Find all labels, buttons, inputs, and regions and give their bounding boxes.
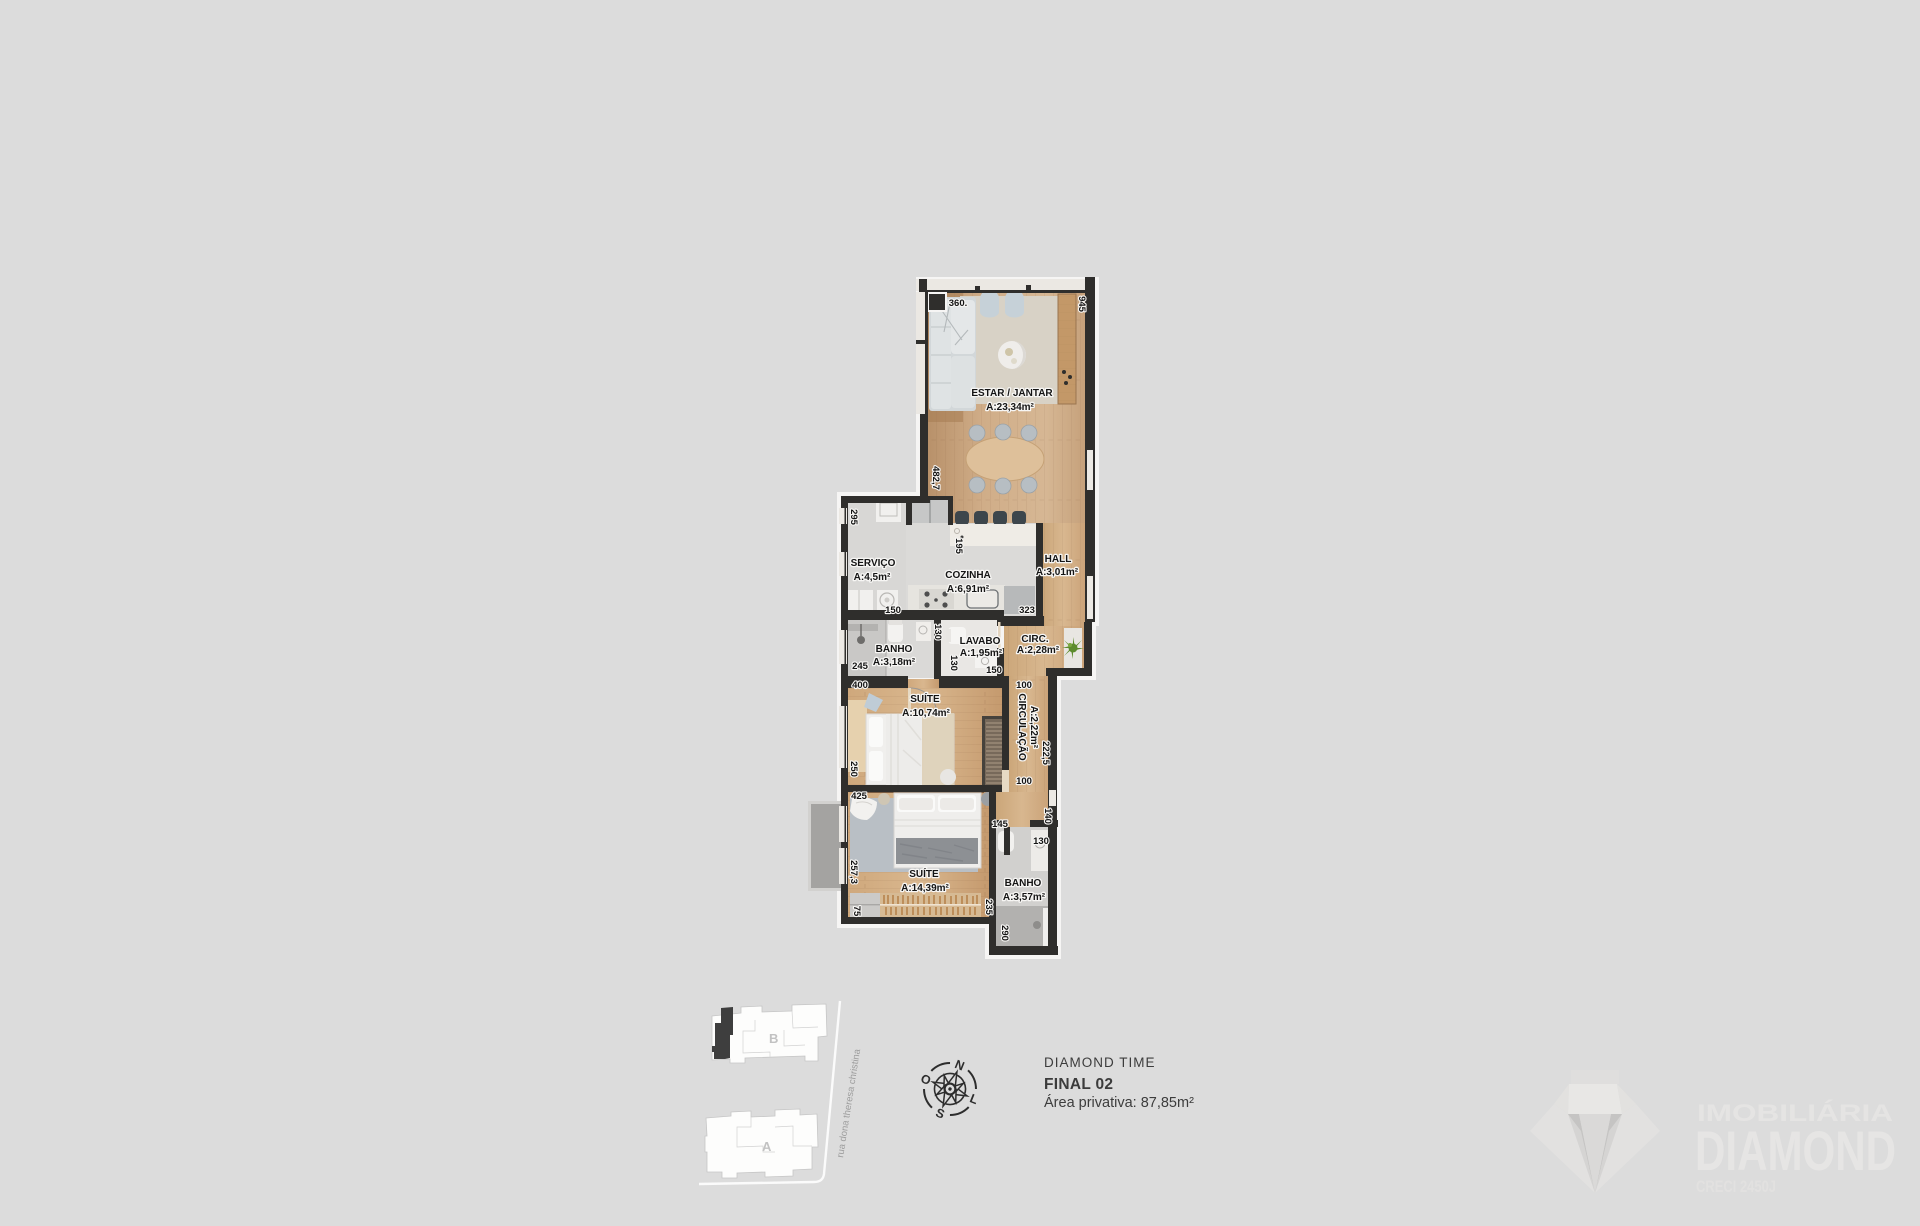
svg-text:A:23,34m²: A:23,34m² [986,402,1034,413]
svg-text:100: 100 [1016,680,1032,691]
svg-text:A:6,91m²: A:6,91m² [947,584,990,595]
svg-text:CIRC.: CIRC. [1021,634,1048,645]
svg-text:SUÍTE: SUÍTE [909,867,939,880]
svg-text:130: 130 [1033,836,1049,847]
svg-text:B: B [769,1031,778,1046]
svg-text:CRECI 2450J: CRECI 2450J [1696,1177,1776,1196]
svg-text:A:3,18m²: A:3,18m² [873,657,916,668]
svg-text:A:1,95m²: A:1,95m² [960,648,1003,659]
svg-text:235: 235 [983,899,994,916]
svg-text:A:2,28m²: A:2,28m² [1017,645,1060,656]
svg-text:A:2,22m²: A:2,22m² [1028,706,1039,749]
svg-text:75: 75 [851,906,862,917]
svg-text:150: 150 [986,665,1002,676]
svg-text:250: 250 [848,761,859,777]
svg-text:A:10,74m²: A:10,74m² [902,708,950,719]
svg-text:323: 323 [1019,605,1035,616]
svg-text:LAVABO: LAVABO [960,636,1001,647]
svg-text:400: 400 [852,680,868,691]
svg-text:257,3: 257,3 [848,860,859,884]
svg-text:A:4,5m²: A:4,5m² [854,572,891,583]
svg-text:195: 195 [953,538,964,555]
svg-text:A:3,57m²: A:3,57m² [1003,892,1046,903]
svg-text:A:3,01m²: A:3,01m² [1036,567,1079,578]
svg-text:FINAL 02: FINAL 02 [1044,1076,1113,1093]
svg-text:245: 245 [852,661,869,672]
svg-text:145: 145 [992,819,1009,830]
svg-text:SERVIÇO: SERVIÇO [851,558,896,569]
svg-text:425: 425 [851,791,868,802]
svg-text:150: 150 [885,605,901,616]
svg-text:482,7: 482,7 [930,466,941,490]
svg-text:DIAMOND: DIAMOND [1695,1119,1896,1182]
svg-text:CIRCULAÇÃO: CIRCULAÇÃO [1016,693,1029,760]
svg-text:222,5: 222,5 [1040,741,1051,765]
svg-text:140: 140 [1042,808,1053,824]
svg-text:A:14,39m²: A:14,39m² [901,883,949,894]
svg-text:360.: 360. [949,298,968,309]
svg-text:SUÍTE: SUÍTE [910,692,940,705]
svg-text:COZINHA: COZINHA [945,570,991,581]
svg-text:HALL: HALL [1045,554,1072,565]
svg-text:DIAMOND TIME: DIAMOND TIME [1044,1055,1156,1070]
svg-text:ESTAR / JANTAR: ESTAR / JANTAR [971,388,1053,399]
svg-text:130: 130 [932,624,943,640]
svg-text:130: 130 [948,655,959,671]
svg-text:290: 290 [999,925,1010,941]
svg-text:295: 295 [848,509,859,526]
svg-text:A: A [762,1139,772,1154]
svg-text:945: 945 [1076,296,1087,313]
svg-text:BANHO: BANHO [876,644,913,655]
svg-text:BANHO: BANHO [1005,878,1042,889]
svg-text:Área privativa: 87,85m²: Área privativa: 87,85m² [1044,1094,1194,1111]
svg-text:100: 100 [1016,776,1032,787]
